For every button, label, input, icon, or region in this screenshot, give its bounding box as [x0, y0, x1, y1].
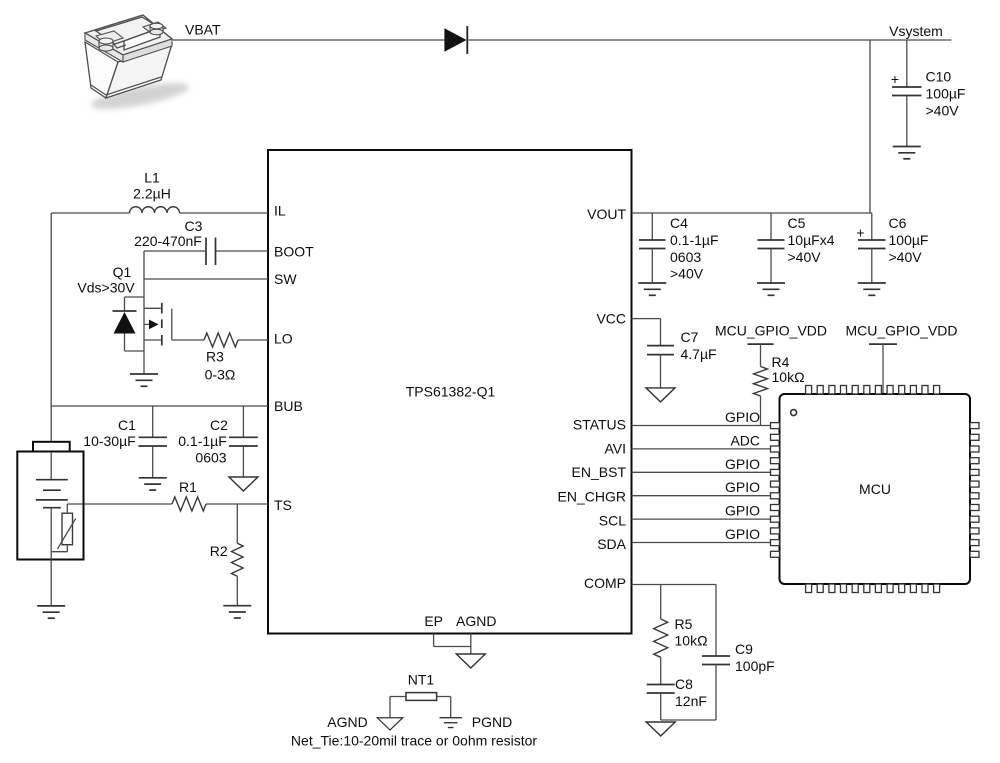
- svg-text:R4: R4: [772, 354, 790, 370]
- svg-text:VOUT: VOUT: [587, 206, 626, 222]
- svg-text:C7: C7: [681, 329, 699, 345]
- svg-text:ADC: ADC: [730, 432, 760, 448]
- svg-text:AGND: AGND: [327, 714, 367, 730]
- svg-text:100µF: 100µF: [926, 86, 966, 102]
- svg-text:MCU: MCU: [859, 481, 891, 497]
- svg-text:PGND: PGND: [472, 714, 512, 730]
- svg-text:MCU_GPIO_VDD: MCU_GPIO_VDD: [715, 323, 827, 339]
- svg-text:C1: C1: [118, 417, 136, 433]
- svg-text:C2: C2: [210, 417, 228, 433]
- svg-text:4.7µF: 4.7µF: [681, 346, 717, 362]
- svg-text:C10: C10: [926, 69, 952, 85]
- svg-text:Vds>30V: Vds>30V: [77, 280, 135, 296]
- svg-text:0603: 0603: [195, 450, 226, 466]
- svg-text:NT1: NT1: [408, 672, 435, 688]
- svg-text:>40V: >40V: [788, 249, 822, 265]
- svg-text:0-3Ω: 0-3Ω: [205, 367, 236, 383]
- svg-text:SW: SW: [274, 271, 297, 287]
- svg-text:Net_Tie:10-20mil trace or 0ohm: Net_Tie:10-20mil trace or 0ohm resistor: [291, 733, 537, 749]
- svg-text:R1: R1: [179, 479, 197, 495]
- svg-text:C9: C9: [735, 641, 753, 657]
- svg-text:STATUS: STATUS: [573, 417, 626, 433]
- svg-text:MCU_GPIO_VDD: MCU_GPIO_VDD: [845, 323, 957, 339]
- svg-text:SDA: SDA: [597, 536, 626, 552]
- svg-text:0603: 0603: [670, 249, 701, 265]
- svg-text:TS: TS: [274, 497, 292, 513]
- svg-text:GPIO: GPIO: [725, 456, 760, 472]
- svg-text:GPIO: GPIO: [725, 409, 760, 425]
- svg-text:2.2µH: 2.2µH: [133, 186, 171, 202]
- svg-text:>40V: >40V: [926, 103, 960, 119]
- svg-text:>40V: >40V: [670, 266, 704, 282]
- svg-text:GPIO: GPIO: [725, 479, 760, 495]
- svg-text:10µFx4: 10µFx4: [788, 232, 835, 248]
- svg-text:R3: R3: [206, 349, 224, 365]
- svg-text:VCC: VCC: [596, 311, 626, 327]
- svg-text:LO: LO: [274, 331, 293, 347]
- svg-text:EN_BST: EN_BST: [572, 464, 627, 480]
- svg-text:R5: R5: [675, 616, 693, 632]
- svg-text:EP: EP: [424, 613, 443, 629]
- svg-text:12nF: 12nF: [675, 693, 707, 709]
- svg-text:Vsystem: Vsystem: [889, 23, 943, 39]
- svg-text:IL: IL: [274, 203, 286, 219]
- svg-text:0.1-1µF: 0.1-1µF: [178, 433, 227, 449]
- svg-text:EN_CHGR: EN_CHGR: [558, 489, 626, 505]
- svg-text:SCL: SCL: [599, 513, 626, 529]
- svg-text:C3: C3: [185, 218, 203, 234]
- svg-text:10kΩ: 10kΩ: [772, 369, 805, 385]
- svg-text:COMP: COMP: [584, 575, 626, 591]
- svg-text:220-470nF: 220-470nF: [134, 233, 202, 249]
- svg-text:C8: C8: [675, 676, 693, 692]
- svg-text:VBAT: VBAT: [185, 22, 221, 38]
- svg-text:R2: R2: [210, 543, 228, 559]
- svg-text:L1: L1: [144, 170, 160, 186]
- svg-text:TPS61382-Q1: TPS61382-Q1: [406, 384, 496, 400]
- svg-text:Q1: Q1: [113, 264, 132, 280]
- svg-text:BUB: BUB: [274, 398, 303, 414]
- svg-text:C5: C5: [788, 215, 806, 231]
- svg-text:+: +: [856, 225, 864, 241]
- svg-text:GPIO: GPIO: [725, 503, 760, 519]
- svg-text:C4: C4: [670, 215, 688, 231]
- svg-text:AVI: AVI: [604, 441, 626, 457]
- svg-text:BOOT: BOOT: [274, 244, 314, 260]
- svg-text:C6: C6: [889, 215, 907, 231]
- svg-text:+: +: [891, 71, 899, 87]
- svg-text:100pF: 100pF: [735, 658, 775, 674]
- svg-text:AGND: AGND: [456, 613, 496, 629]
- svg-text:10kΩ: 10kΩ: [675, 633, 708, 649]
- svg-text:10-30µF: 10-30µF: [83, 433, 135, 449]
- svg-text:100µF: 100µF: [889, 232, 929, 248]
- svg-text:GPIO: GPIO: [725, 526, 760, 542]
- svg-text:>40V: >40V: [889, 249, 923, 265]
- svg-text:0.1-1µF: 0.1-1µF: [670, 232, 719, 248]
